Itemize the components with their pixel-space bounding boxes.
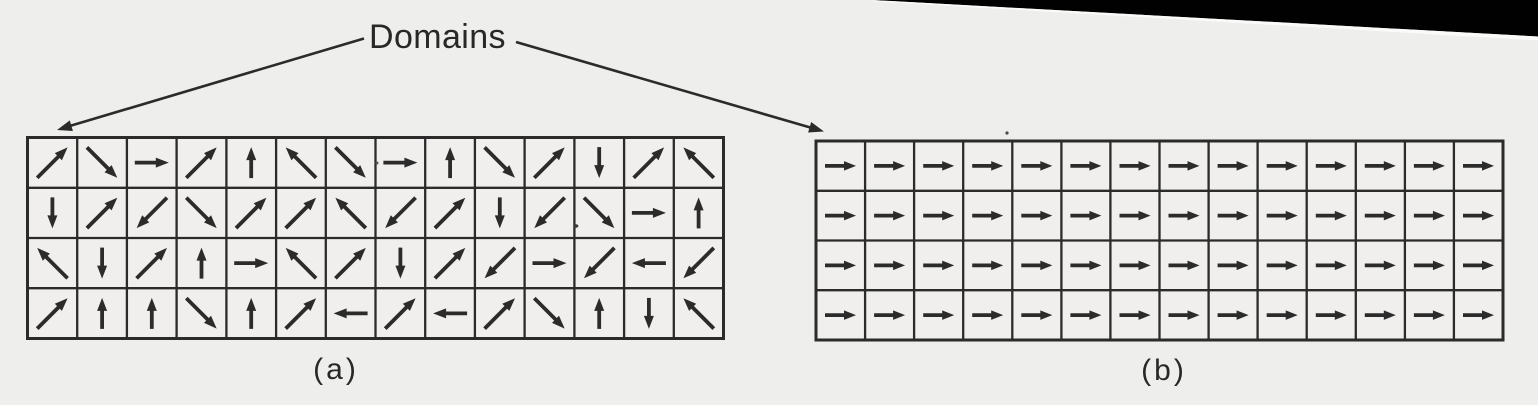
svg-text:(b): (b)	[1141, 354, 1187, 387]
svg-text:Domains: Domains	[369, 18, 506, 56]
svg-text:(a): (a)	[313, 353, 359, 386]
